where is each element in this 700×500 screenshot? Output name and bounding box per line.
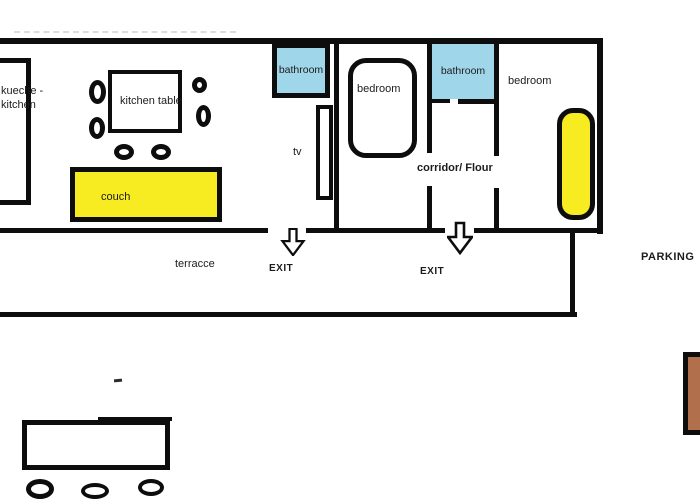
exit-down-arrow-icon [447,221,473,255]
bathroom-right: bathroom [432,44,494,99]
corridor-label: corridor/ Flour [417,162,493,175]
chair-oval [196,105,211,127]
floor-plan-canvas: kueche - kitchen kitchen table couch bat… [0,0,700,500]
couch [70,167,222,222]
bed-right [557,108,595,220]
exit-down-arrow-icon [280,228,306,256]
kitchen-label-line1: kueche - [1,85,43,98]
wall-bottom-left-segment [0,228,268,233]
bathroom-left: bathroom [272,43,330,98]
stool-oval [81,483,109,499]
kitchen-table-label: kitchen table [120,95,182,108]
wall-right [597,38,603,234]
wall-corridor-right-lower [494,188,499,232]
stray-dashed-line [14,31,236,33]
chair-oval [114,144,134,160]
outdoor-table-top-stroke [98,417,172,421]
wall-corridor-left-lower [427,186,432,232]
chair-oval [89,117,105,139]
chair-oval [151,144,171,160]
bathroom-right-label: bathroom [441,65,485,77]
brown-object [683,352,700,435]
wall-bottom-middle-segment [306,228,445,233]
chair-oval [192,77,207,93]
tv-unit [316,105,333,200]
kitchen-room [0,58,31,205]
exit-left-label: EXIT [269,263,293,275]
wall-bathroom2-bottom-right [458,99,497,104]
bedroom-left-label: bedroom [357,83,400,96]
wall-livingroom-right [334,41,339,232]
tv-label: tv [293,146,302,159]
kitchen-label-line2: kitchen [1,99,36,112]
wall-terrace-bottom [0,312,577,317]
exit-right-label: EXIT [420,266,444,278]
terrace-label: terracce [175,258,215,271]
outdoor-table [22,420,170,470]
stool-oval [138,479,164,496]
couch-label: couch [101,191,130,204]
bed-left [348,58,417,158]
bedroom-right-label: bedroom [508,75,551,88]
bathroom-left-label: bathroom [279,64,323,76]
stool-oval [26,479,54,499]
wall-terrace-right [570,233,575,316]
chair-oval [89,80,106,104]
stray-mark [114,379,122,382]
parking-label: PARKING [641,251,694,264]
